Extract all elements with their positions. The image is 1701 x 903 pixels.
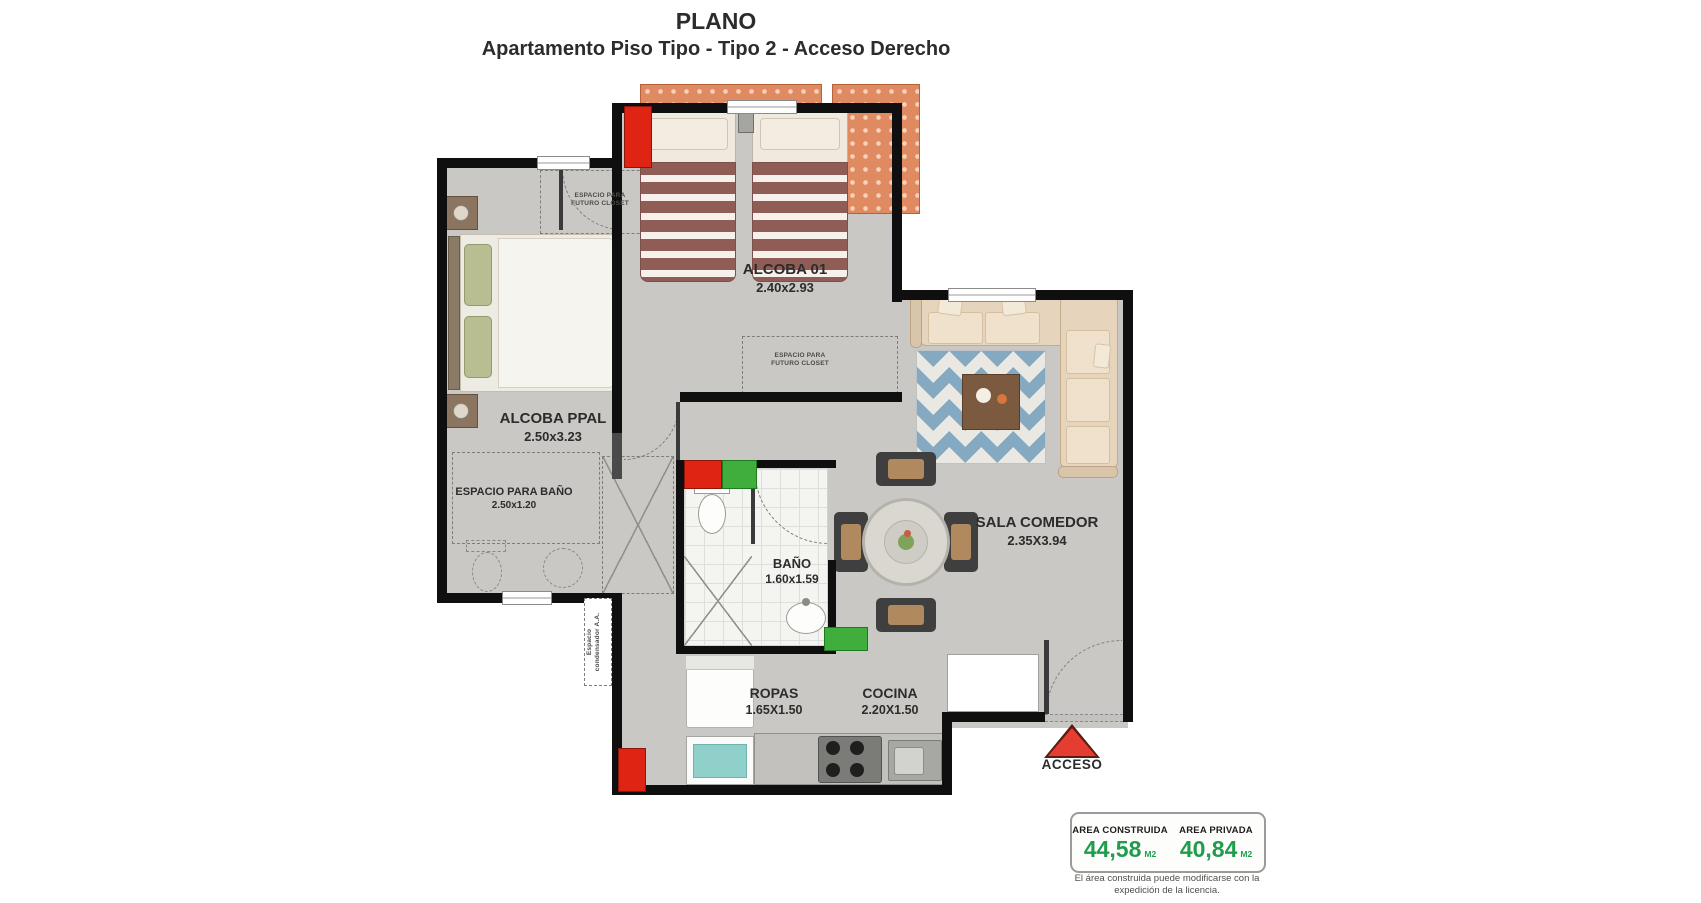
window	[948, 288, 1036, 302]
stove-burner	[850, 741, 864, 755]
toilet-bowl	[698, 494, 726, 534]
sofa-seat	[928, 312, 983, 344]
wall-segment	[437, 158, 447, 603]
coffee-table	[962, 374, 1020, 430]
future-sink	[543, 548, 583, 588]
future-toilet-tank	[466, 540, 506, 552]
stove-burner	[850, 763, 864, 777]
sink-faucet	[802, 598, 810, 606]
room-dims-alcoba-ppal: 2.50x3.23	[524, 429, 582, 444]
wall-segment	[437, 593, 502, 603]
laundry-sink-basin	[693, 744, 747, 778]
washing-machine-panel	[686, 656, 754, 670]
bed-duvet	[498, 238, 616, 388]
kitchen-sink-basin	[894, 747, 924, 775]
area-privada-unit: M2	[1240, 849, 1252, 859]
sofa-seat	[985, 312, 1040, 344]
window	[537, 156, 590, 170]
area-construida-unit: M2	[1144, 849, 1156, 859]
area-privada-label: AREA PRIVADA	[1179, 825, 1253, 836]
green-block-cocina	[824, 627, 868, 651]
wall-segment	[1036, 290, 1133, 300]
entry-door-leaf	[1044, 640, 1049, 714]
wall-segment	[942, 712, 1045, 722]
floorplan-page: PLANO Apartamento Piso Tipo - Tipo 2 - A…	[0, 0, 1701, 903]
sofa-cushion	[1093, 343, 1111, 369]
room-label-espacio-bano: ESPACIO PARA BAÑO	[455, 486, 572, 498]
future-toilet-bowl	[472, 552, 502, 592]
room-dims-espacio-bano: 2.50x1.20	[492, 500, 537, 511]
duct-void	[947, 654, 1039, 712]
bath-sink	[786, 602, 826, 634]
room-label-alcoba01: ALCOBA 01	[743, 261, 827, 278]
alcoba01-door-leaf	[676, 402, 680, 460]
sofa-armrest	[1058, 466, 1118, 478]
wall-segment	[437, 158, 537, 168]
nightstand-lamp	[453, 205, 469, 221]
room-dims-cocina: 2.20X1.50	[862, 703, 919, 717]
shower-corner	[684, 556, 752, 646]
room-label-bano: BAÑO	[773, 556, 811, 571]
wall-segment	[797, 103, 902, 113]
headboard	[448, 236, 460, 390]
room-dims-alcoba01: 2.40x2.93	[756, 280, 814, 295]
room-label-cocina: COCINA	[862, 685, 917, 701]
stove-burner	[826, 763, 840, 777]
room-label-sala: SALA COMEDOR	[976, 514, 1099, 531]
wall-segment	[612, 785, 952, 795]
entry-threshold	[1045, 714, 1123, 722]
wall-segment	[892, 290, 948, 300]
wall-segment	[680, 392, 902, 402]
bed-pillow	[648, 118, 728, 150]
access-label: ACCESO	[1042, 757, 1103, 772]
wall-bath	[676, 460, 684, 654]
area-construida-label: AREA CONSTRUIDA	[1072, 825, 1168, 836]
centerpiece-flower	[904, 530, 911, 537]
dining-chair	[876, 598, 936, 632]
red-block	[618, 748, 646, 792]
area-construida-value: 44,58	[1084, 838, 1142, 861]
sofa-seat	[1066, 378, 1110, 422]
wall-segment	[942, 712, 952, 795]
coffee-table-decor	[997, 394, 1007, 404]
access-triangle	[1048, 728, 1096, 756]
area-privada: AREA PRIVADA 40,84 M2	[1168, 814, 1264, 871]
pocket-door	[612, 433, 622, 479]
sofa-seat	[1066, 426, 1110, 464]
alcoba-ppal-door-leaf	[559, 168, 563, 230]
room-label-alcoba-ppal: ALCOBA PPAL	[500, 410, 607, 427]
bed-pillow	[760, 118, 840, 150]
area-privada-value: 40,84	[1180, 838, 1238, 861]
window	[727, 100, 797, 114]
wall-segment	[1123, 290, 1133, 722]
room-dims-ropas: 1.65X1.50	[746, 703, 803, 717]
room-label-ropas: ROPAS	[750, 685, 799, 701]
nightstand-lamp	[453, 403, 469, 419]
room-dims-sala: 2.35X3.94	[1007, 533, 1066, 548]
closet-future-alcoba01-label: ESPACIO PARA FUTURO CLOSET	[771, 352, 829, 368]
red-block-bath	[684, 460, 722, 489]
red-block	[624, 106, 652, 168]
green-block-bath	[722, 460, 757, 489]
wall-bath	[676, 646, 836, 654]
page-subtitle: Apartamento Piso Tipo - Tipo 2 - Acceso …	[482, 38, 951, 61]
stove-burner	[826, 741, 840, 755]
espacio-bano-zone	[452, 452, 600, 544]
wall-segment	[892, 103, 902, 302]
bed-blanket	[640, 162, 736, 282]
window	[502, 591, 552, 605]
bed-pillow-green	[464, 244, 492, 306]
area-construida: AREA CONSTRUIDA 44,58 M2	[1072, 814, 1168, 871]
area-summary-card: AREA CONSTRUIDA 44,58 M2 AREA PRIVADA 40…	[1070, 812, 1266, 873]
sofa-armrest	[910, 294, 922, 348]
area-disclaimer: El área construida puede modificarse con…	[1052, 873, 1282, 898]
dining-chair	[876, 452, 936, 486]
coffee-table-decor	[976, 388, 991, 403]
bed-pillow-green	[464, 316, 492, 378]
condenser-label: Espacio condensador A.A.	[586, 600, 610, 684]
page-title: PLANO	[676, 8, 757, 35]
kitchen-faucet	[929, 752, 938, 761]
closet-future-ppal-label: ESPACIO PARA FUTURO CLOSET	[571, 192, 629, 208]
room-dims-bano: 1.60x1.59	[765, 572, 818, 586]
